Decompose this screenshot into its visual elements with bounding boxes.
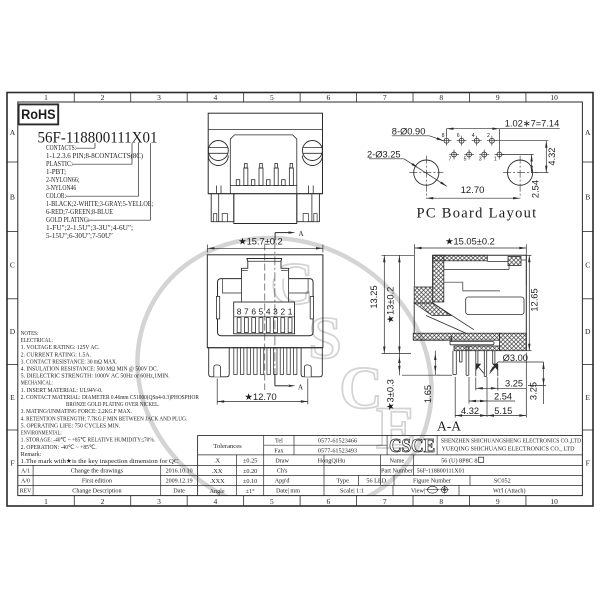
svg-text:B: B <box>585 192 590 201</box>
svg-text:ELECTRICAL:: ELECTRICAL: <box>21 337 53 344</box>
svg-text:7: 7 <box>383 93 387 102</box>
svg-text:★12.70: ★12.70 <box>244 392 276 403</box>
svg-text:GOLD PLATING:: GOLD PLATING: <box>46 217 90 224</box>
svg-text:5: 5 <box>270 497 274 506</box>
svg-text:2: 2 <box>101 93 105 102</box>
svg-text:6: 6 <box>457 133 460 139</box>
svg-text:5-15U″;6-30U″;7-50U″: 5-15U″;6-30U″;7-50U″ <box>46 233 113 240</box>
svg-text:C: C <box>585 261 590 270</box>
svg-text:Remark:: Remark: <box>21 451 42 458</box>
svg-text:CONTACTS:: CONTACTS: <box>46 145 76 152</box>
svg-text:REV: REV <box>20 489 32 495</box>
svg-text:5. OPERATING LIFE: 750 CYCLES: 5. OPERATING LIFE: 750 CYCLES MIN. <box>21 422 121 429</box>
svg-text:3.25: 3.25 <box>529 382 539 400</box>
svg-text:5.15: 5.15 <box>494 406 512 416</box>
svg-text:Tel: Tel <box>275 438 283 445</box>
svg-text:6: 6 <box>326 93 330 102</box>
svg-text:1. VOLTAGE RATING: 125V AC.: 1. VOLTAGE RATING: 125V AC. <box>21 344 100 351</box>
svg-text:2: 2 <box>487 133 490 139</box>
svg-text:1.The mark with★is the key ins: 1.The mark with★is the key inspection di… <box>21 457 179 465</box>
svg-text:1: 1 <box>44 93 48 102</box>
svg-text:±1°: ±1° <box>246 488 255 495</box>
svg-text:7: 7 <box>383 497 387 506</box>
svg-text:Date: Date <box>173 488 185 495</box>
svg-text:PC Board Layout: PC Board Layout <box>417 206 538 222</box>
svg-text:PLASTIC:: PLASTIC: <box>46 161 73 168</box>
svg-text:A/0: A/0 <box>21 478 30 484</box>
svg-text:3: 3 <box>157 497 161 506</box>
svg-text:Fax: Fax <box>274 447 284 454</box>
svg-text:E: E <box>10 393 15 402</box>
svg-text:2. OPERATION: -40℃ ~ +85℃.: 2. OPERATION: -40℃ ~ +85℃. <box>21 444 97 451</box>
svg-text:COLOR:: COLOR: <box>46 193 66 200</box>
svg-text:1: 1 <box>494 157 497 163</box>
svg-text:2.54: 2.54 <box>494 391 512 401</box>
svg-text:0577-61523466: 0577-61523466 <box>318 438 357 445</box>
svg-text:1: 1 <box>44 497 48 506</box>
svg-text:9: 9 <box>496 497 500 506</box>
svg-text:4.32: 4.32 <box>547 148 557 166</box>
svg-text:12.70: 12.70 <box>461 185 485 196</box>
svg-text:Part Number: Part Number <box>381 467 413 474</box>
svg-text:±0.20: ±0.20 <box>243 468 257 475</box>
svg-text:CSCE: CSCE <box>389 435 435 457</box>
svg-text:4. RETENTION STRENGTH: 7.7KG.F: 4. RETENTION STRENGTH: 7.7KG.F MIN BETWE… <box>21 415 188 422</box>
svg-text:2009.12.19: 2009.12.19 <box>166 478 193 484</box>
svg-text:1-1.2.3.6 PIN;8-8CONTACTS(8C): 1-1.2.3.6 PIN;8-8CONTACTS(8C) <box>46 153 143 160</box>
svg-text:RoHS: RoHS <box>21 107 56 123</box>
svg-text:8: 8 <box>439 497 443 506</box>
svg-text:13.25: 13.25 <box>369 285 379 308</box>
svg-text:Change Description: Change Description <box>72 488 121 495</box>
svg-text:Tolerances: Tolerances <box>213 443 242 450</box>
svg-text:3. MATING/UNMATING FORCE: 2.2K: 3. MATING/UNMATING FORCE: 2.2KG.F MAX. <box>21 408 132 415</box>
svg-text:1-BLACK;2-WHITE;3-GRAY;5-YELLO: 1-BLACK;2-WHITE;3-GRAY;5-YELLOE; <box>46 201 153 208</box>
svg-text:Scale| 1:1: Scale| 1:1 <box>340 488 364 495</box>
svg-text:YUEQING SHICHUANG ELECTRONICS: YUEQING SHICHUANG ELECTRONICS CO., LTD <box>442 445 575 452</box>
svg-text:±0.10: ±0.10 <box>243 478 257 485</box>
svg-text:7: 7 <box>449 157 452 163</box>
svg-text:Angle: Angle <box>210 488 225 495</box>
svg-text:1. INSERT MATERIAL: UL94V-0.: 1. INSERT MATERIAL: UL94V-0. <box>21 387 103 394</box>
svg-text:5: 5 <box>270 93 274 102</box>
svg-text:F: F <box>10 458 14 467</box>
svg-text:BRONZE GOLD PLATING OVER NICKE: BRONZE GOLD PLATING OVER NICKEL. <box>66 401 160 408</box>
svg-text:1-FU″;2-1.5U″;3-3U″;4-6U″;: 1-FU″;2-1.5U″;3-3U″;4-6U″; <box>46 225 133 232</box>
svg-text:Name: Name <box>390 457 405 464</box>
svg-text:A-A: A-A <box>437 419 461 434</box>
svg-text:56 (U) 8P8C 8: 56 (U) 8P8C 8 <box>441 457 477 464</box>
svg-text:1. STORAGE: -40℃ ~ +85℃ RELATI: 1. STORAGE: -40℃ ~ +85℃ RELATIVE HUMIDIT… <box>21 437 156 444</box>
svg-text:2-NYLON66;: 2-NYLON66; <box>46 177 80 184</box>
svg-text:D: D <box>10 327 16 336</box>
svg-text:★15.7±0.2: ★15.7±0.2 <box>238 237 282 247</box>
svg-text:View|: View| <box>411 488 425 495</box>
svg-text:A: A <box>10 128 16 137</box>
svg-text:56F-118800111X01: 56F-118800111X01 <box>38 130 158 147</box>
svg-text:4: 4 <box>472 133 475 139</box>
svg-text:HongQiHu: HongQiHu <box>318 457 346 464</box>
svg-text:Ø3.00: Ø3.00 <box>503 353 528 363</box>
svg-text:Type: Type <box>337 477 350 484</box>
svg-text:A: A <box>298 383 303 391</box>
svg-text:Wt'l (Attach): Wt'l (Attach) <box>493 488 526 495</box>
svg-text:12.65: 12.65 <box>530 288 540 311</box>
svg-text:3: 3 <box>479 157 482 163</box>
svg-text:2-Ø3.25: 2-Ø3.25 <box>367 149 401 159</box>
svg-text:3-NYLON46: 3-NYLON46 <box>46 185 77 192</box>
svg-text:NOTES:: NOTES: <box>21 330 39 337</box>
svg-text:MECHANICAL:: MECHANICAL: <box>21 380 53 387</box>
svg-text:2016.10.10: 2016.10.10 <box>166 468 193 474</box>
svg-text:App'd: App'd <box>275 477 291 484</box>
svg-text:8-Ø0.90: 8-Ø0.90 <box>392 126 426 136</box>
svg-text:2. CURRENT RATING: 1.5A.: 2. CURRENT RATING: 1.5A. <box>21 351 91 358</box>
svg-text:.XXX: .XXX <box>210 478 225 485</box>
svg-text:3: 3 <box>273 307 278 317</box>
svg-text:E: E <box>585 393 590 402</box>
svg-text:.XX: .XX <box>212 468 223 475</box>
svg-text:2. CONTACT MATERIAL: DIAMETER: 2. CONTACT MATERIAL: DIAMETER 0.46mm C51… <box>21 394 200 401</box>
svg-text:ENVIRONMENTAL:: ENVIRONMENTAL: <box>21 430 62 437</box>
svg-text:1.02∗7=7.14: 1.02∗7=7.14 <box>505 119 560 129</box>
svg-text:F: F <box>586 458 590 467</box>
svg-text:6-RED;7-GREEN;8-BLUE: 6-RED;7-GREEN;8-BLUE <box>46 209 113 216</box>
svg-text:1.65: 1.65 <box>423 385 433 403</box>
svg-text:Date| mm: Date| mm <box>276 488 300 495</box>
svg-text:8: 8 <box>439 93 443 102</box>
svg-text:56 LED: 56 LED <box>366 477 386 484</box>
svg-text:8: 8 <box>442 133 445 139</box>
svg-text:★13±0.2: ★13±0.2 <box>385 287 395 324</box>
svg-text:Ch's: Ch's <box>277 467 288 474</box>
svg-text:3.25: 3.25 <box>505 378 523 388</box>
svg-text:10: 10 <box>550 93 558 102</box>
svg-text:1: 1 <box>288 307 293 317</box>
svg-text:D: D <box>585 327 591 336</box>
svg-text:56F-118800111X01: 56F-118800111X01 <box>417 468 465 474</box>
svg-text:4: 4 <box>214 93 218 102</box>
svg-text:C: C <box>10 261 15 270</box>
svg-text:Figure Number: Figure Number <box>413 477 451 484</box>
svg-text:5. DIELECTRIC STRENGTH: 1000V: 5. DIELECTRIC STRENGTH: 1000V AC 50Hz or… <box>21 373 170 380</box>
svg-text:A: A <box>299 230 304 238</box>
svg-text:±0.25: ±0.25 <box>243 457 257 464</box>
svg-text:6: 6 <box>251 307 256 317</box>
svg-text:4.32: 4.32 <box>461 406 479 416</box>
svg-text:2.54: 2.54 <box>531 180 541 198</box>
svg-text:A: A <box>585 128 591 137</box>
svg-text:10: 10 <box>550 497 558 506</box>
svg-text:3: 3 <box>157 93 161 102</box>
svg-text:2: 2 <box>101 497 105 506</box>
svg-text:3. CONTACT RESISTANCE: 30 mΩ M: 3. CONTACT RESISTANCE: 30 mΩ MAX. <box>21 358 118 365</box>
svg-text:4. INSULATION RESISTANCE: 500: 4. INSULATION RESISTANCE: 500 MΩ MIN @ 5… <box>21 366 158 373</box>
svg-text:SHENZHEN SHICHUANGSHENG ELECTR: SHENZHEN SHICHUANGSHENG ELECTRONICS CO.,… <box>441 437 581 444</box>
svg-text:Change the drawings: Change the drawings <box>71 467 124 474</box>
svg-text:1-PBT;: 1-PBT; <box>46 169 66 176</box>
svg-text:9: 9 <box>496 93 500 102</box>
svg-text:.X: .X <box>214 457 221 464</box>
svg-text:SC052: SC052 <box>494 477 511 484</box>
svg-text:4: 4 <box>266 307 271 317</box>
svg-text:B: B <box>10 192 15 201</box>
svg-text:5: 5 <box>259 307 264 317</box>
svg-text:0577-61523493: 0577-61523493 <box>318 447 357 454</box>
svg-text:A/1: A/1 <box>21 468 30 474</box>
svg-text:First edition: First edition <box>82 477 112 484</box>
svg-text:2: 2 <box>280 307 285 317</box>
svg-text:7: 7 <box>244 307 249 317</box>
svg-text:Draw: Draw <box>275 457 289 464</box>
svg-text:8: 8 <box>237 307 242 317</box>
svg-text:4: 4 <box>214 497 218 506</box>
svg-text:★3±0.3: ★3±0.3 <box>385 379 395 411</box>
svg-text:★15.05±0.2: ★15.05±0.2 <box>445 236 495 246</box>
svg-text:5: 5 <box>464 157 467 163</box>
svg-text:6: 6 <box>326 497 330 506</box>
